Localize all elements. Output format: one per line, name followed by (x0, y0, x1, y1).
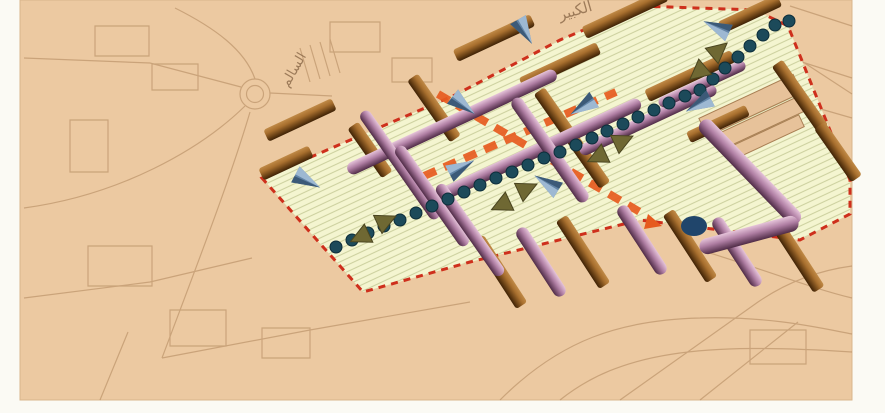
tree-dot (663, 97, 675, 109)
urban-plan-map-screenshot: الكبير السالم (0, 0, 885, 413)
tree-dot (744, 40, 756, 52)
tree-dot (769, 19, 781, 31)
dome-marker (681, 216, 707, 236)
tree-dot (570, 139, 582, 151)
tree-dot (410, 207, 422, 219)
tree-dot (426, 200, 438, 212)
tree-dot (442, 193, 454, 205)
tree-dot (757, 29, 769, 41)
tree-dot (506, 166, 518, 178)
tree-dot (490, 172, 502, 184)
tree-dot (522, 159, 534, 171)
tree-dot (783, 15, 795, 27)
tree-dot (538, 152, 550, 164)
tree-dot (554, 146, 566, 158)
tree-dot (586, 132, 598, 144)
tree-dot (474, 179, 486, 191)
tree-dot (679, 90, 691, 102)
tree-dot (458, 186, 470, 198)
tree-dot (632, 111, 644, 123)
tree-dot (732, 51, 744, 63)
tree-dot (719, 62, 731, 74)
tree-dot (617, 118, 629, 130)
tree-dot (330, 241, 342, 253)
map-illustration: الكبير السالم (0, 0, 885, 413)
tree-dot (648, 104, 660, 116)
